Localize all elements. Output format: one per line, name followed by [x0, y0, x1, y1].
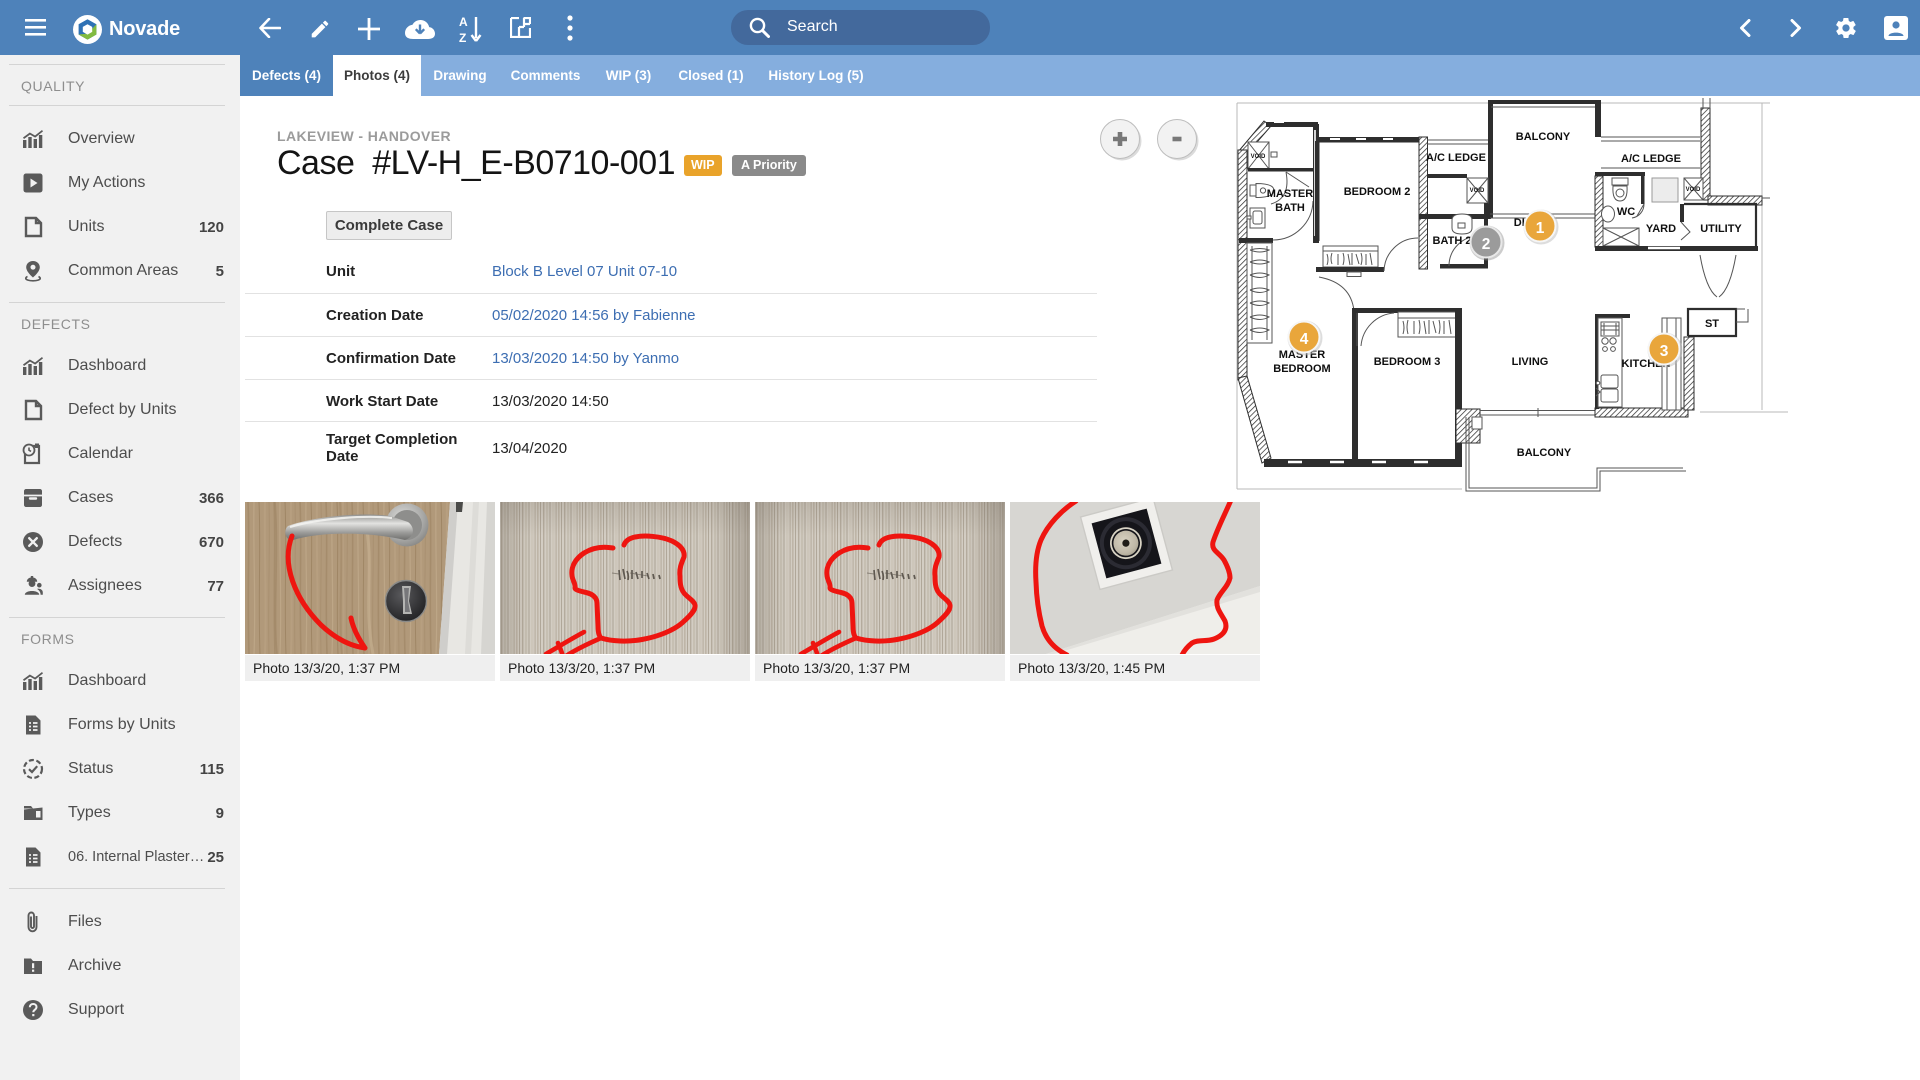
- svg-text:ST: ST: [1705, 318, 1719, 330]
- svg-text:BALCONY: BALCONY: [1517, 447, 1572, 459]
- svg-text:A/C LEDGE: A/C LEDGE: [1426, 152, 1486, 164]
- svg-text:VOID: VOID: [1470, 188, 1485, 194]
- svg-text:VOID: VOID: [1251, 154, 1266, 160]
- svg-text:3: 3: [1660, 343, 1669, 360]
- svg-text:UTILITY: UTILITY: [1700, 223, 1742, 235]
- svg-text:YARD: YARD: [1646, 223, 1676, 235]
- svg-text:A/C LEDGE: A/C LEDGE: [1621, 153, 1681, 165]
- svg-text:LIVING: LIVING: [1512, 356, 1549, 368]
- svg-text:1: 1: [1536, 220, 1545, 237]
- svg-text:BATH: BATH: [1275, 202, 1305, 214]
- svg-text:WC: WC: [1617, 206, 1635, 218]
- svg-text:BEDROOM 2: BEDROOM 2: [1344, 186, 1411, 198]
- svg-text:BEDROOM 3: BEDROOM 3: [1374, 356, 1441, 368]
- svg-text:BEDROOM: BEDROOM: [1273, 363, 1330, 375]
- svg-text:VOID: VOID: [1686, 187, 1701, 193]
- svg-text:2: 2: [1482, 236, 1491, 253]
- svg-text:A: A: [459, 16, 468, 29]
- svg-text:BATH 2: BATH 2: [1433, 235, 1472, 247]
- svg-text:4: 4: [1300, 331, 1309, 348]
- svg-text:Z: Z: [459, 31, 466, 43]
- svg-text:BALCONY: BALCONY: [1516, 131, 1571, 143]
- svg-text:MASTER: MASTER: [1267, 188, 1314, 200]
